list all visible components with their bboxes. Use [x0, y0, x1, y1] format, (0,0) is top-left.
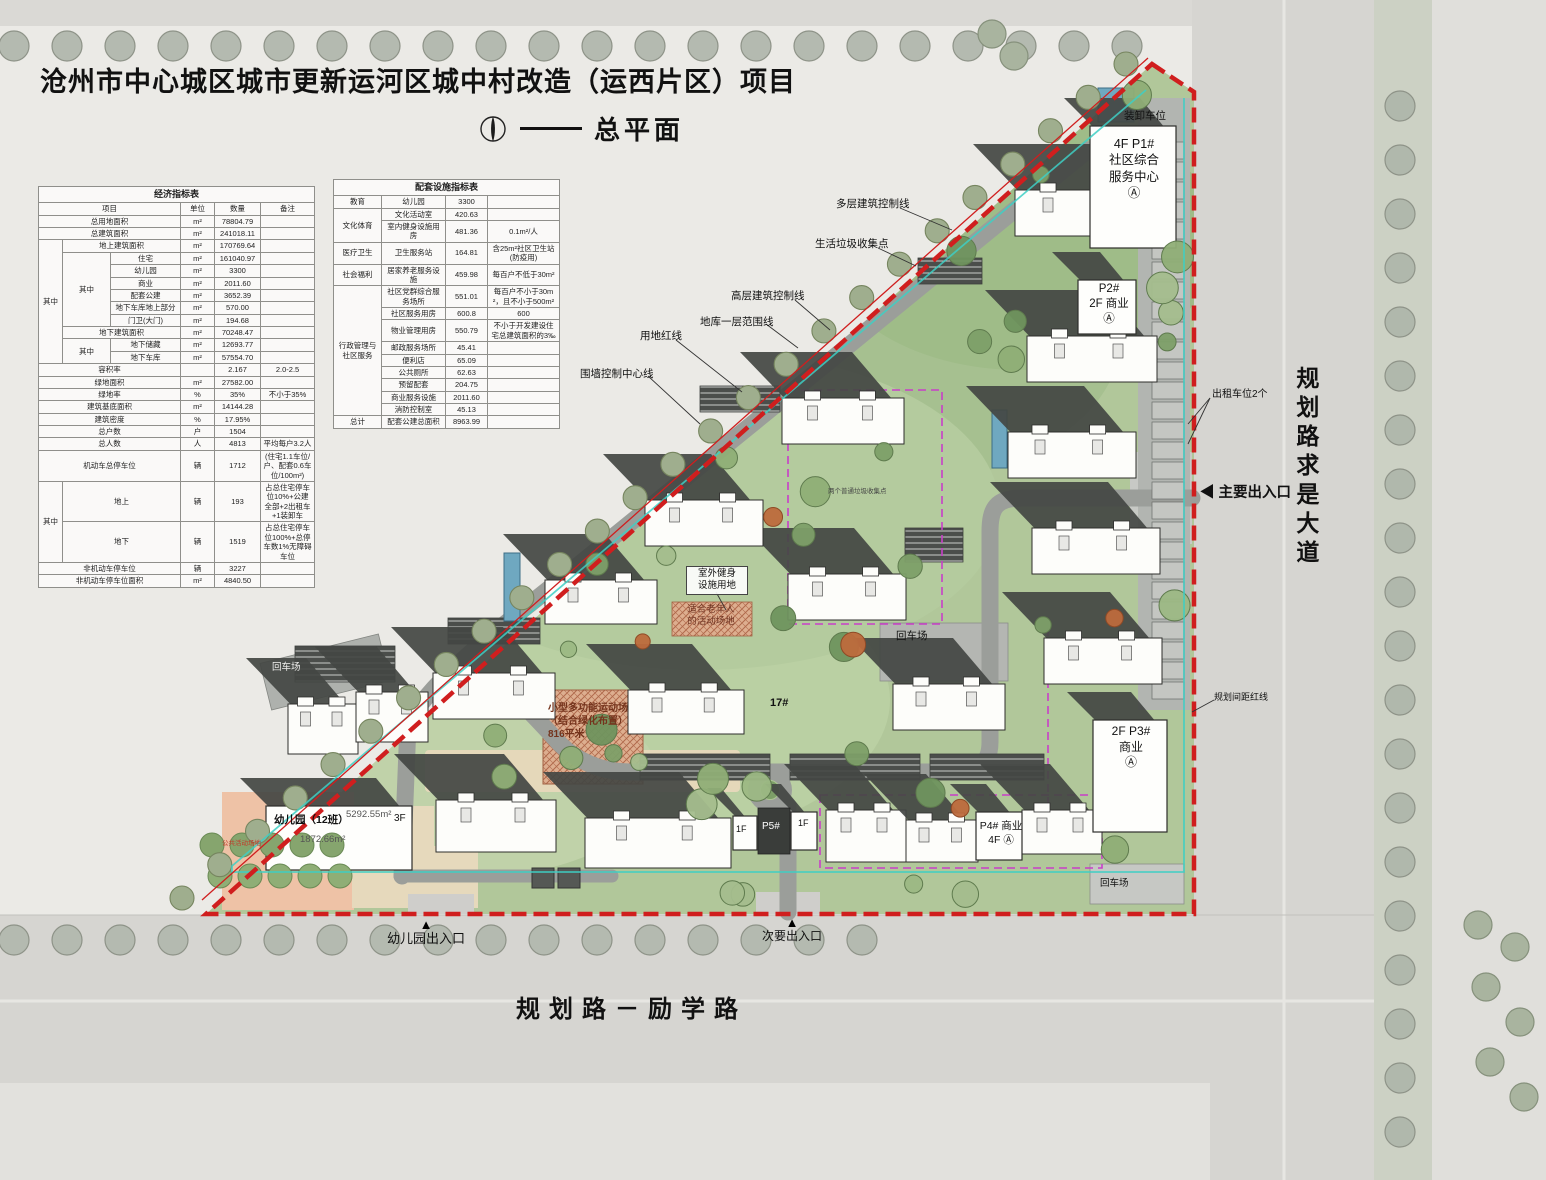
table-cell: 单位: [181, 203, 215, 215]
label-kindergarten-floors: 3F: [394, 812, 406, 825]
tree-icon: [742, 772, 771, 801]
street-tree-icon: [847, 31, 877, 61]
table-cell: 社区党群综合服务场所: [382, 286, 446, 308]
table-cell: [181, 364, 215, 376]
stair-core: [1056, 521, 1072, 530]
table-cell: [261, 302, 315, 314]
table-cell: [488, 416, 560, 428]
table-cell: m²: [181, 289, 215, 301]
street-tree-icon: [1385, 469, 1415, 499]
building-footprint: [436, 800, 556, 852]
street-tree-icon: [1385, 901, 1415, 931]
table-cell: [261, 252, 315, 264]
label-building-p2: P2# 2F 商业 Ⓐ: [1082, 282, 1136, 327]
table-cell: [488, 404, 560, 416]
table-cell: 门卫(大门): [111, 314, 181, 326]
street-tree-icon: [635, 31, 665, 61]
unit-core: [618, 588, 628, 602]
table-cell: 17.95%: [215, 413, 261, 425]
table-cell: [261, 314, 315, 326]
table-cell: 1504: [215, 426, 261, 438]
label-1f-a: 1F: [736, 824, 747, 836]
street-tree-icon: [529, 925, 559, 955]
boundary-tree-icon: [1001, 152, 1025, 176]
label-kindergarten-name: 幼儿园（12班）: [274, 814, 349, 828]
boundary-tree-icon: [397, 686, 421, 710]
table-cell: 194.68: [215, 314, 261, 326]
unit-core: [966, 692, 976, 706]
table-cell: m²: [181, 215, 215, 227]
tree-icon: [1159, 590, 1190, 621]
building-footprint: [788, 574, 906, 620]
table-cell: 164.81: [446, 242, 488, 264]
unit-core: [813, 582, 823, 596]
parking-stall: [1152, 442, 1184, 459]
table-cell: 公共厕所: [382, 366, 446, 378]
boundary-tree-icon: [623, 486, 647, 510]
table-cell: 总户数: [39, 426, 181, 438]
street-tree-icon: [317, 925, 347, 955]
tree-icon: [998, 346, 1024, 372]
label-1f-b: 1F: [798, 818, 809, 830]
table-cell: 地下车库地上部分: [111, 302, 181, 314]
unit-core: [617, 826, 627, 840]
table-cell: 经济指标表: [39, 187, 315, 203]
street-tree-icon: [105, 925, 135, 955]
stair-core: [614, 811, 630, 820]
table-cell: 绿地率: [39, 388, 181, 400]
label-sports-field: 小型多功能运动场 （结合绿化布置） 816平米: [548, 702, 628, 741]
unit-core: [1122, 646, 1132, 660]
street-tree-icon: [688, 925, 718, 955]
label-taxi-bays: 出租车位2个: [1212, 388, 1268, 401]
label-outdoor-fitness: 室外健身 设施用地: [686, 566, 748, 595]
table-cell: 每百户不小于30m²，且不小于500m²: [488, 286, 560, 308]
unit-core: [919, 828, 929, 842]
economic-indicator-table: 经济指标表项目单位数量备注总用地面积m²78804.79总建筑面积m²24101…: [38, 186, 315, 588]
table-cell: 商业服务设施: [382, 391, 446, 403]
table-cell: 地上: [63, 481, 181, 522]
parking-stall: [1152, 462, 1184, 479]
stair-core: [720, 493, 736, 502]
building-footprint: [628, 690, 744, 734]
facilities-table-body: 配套设施指标表教育幼儿园3300文化体育文化活动室420.63室内健身设施用房4…: [334, 180, 560, 429]
bush-icon: [298, 864, 322, 888]
table-cell: 4813: [215, 438, 261, 450]
table-cell: 总建筑面积: [39, 228, 181, 240]
unit-core: [1037, 818, 1047, 832]
table-cell: 481.36: [446, 221, 488, 243]
label-building-p3: 2F P3# 商业 Ⓐ: [1100, 724, 1162, 771]
boundary-tree-icon: [963, 185, 987, 209]
table-cell: [261, 240, 315, 252]
table-cell: 总计: [334, 416, 382, 428]
table-cell: 居家养老服务设施: [382, 264, 446, 286]
secondary-entrance-arrow-icon: ▲: [740, 916, 844, 929]
street-tree-icon: [1385, 253, 1415, 283]
table-cell: 备注: [261, 203, 315, 215]
stair-core: [1090, 425, 1106, 434]
table-cell: %: [181, 388, 215, 400]
unit-core: [1117, 536, 1127, 550]
unit-core: [369, 700, 379, 714]
parking-stall: [1152, 622, 1184, 639]
tree-icon: [845, 742, 869, 766]
tree-icon: [657, 546, 676, 565]
table-cell: 配套设施指标表: [334, 180, 560, 196]
label-kindergarten-entrance: ▲幼儿园出入口: [368, 918, 484, 948]
building-footprint: [288, 704, 358, 754]
table-cell: 项目: [39, 203, 181, 215]
table-cell: 辆: [181, 522, 215, 563]
table-cell: 数量: [215, 203, 261, 215]
tree-icon: [916, 778, 945, 807]
main-entrance-arrow-icon: ◀: [1200, 485, 1215, 501]
stair-core: [649, 683, 665, 692]
table-cell: 其中: [39, 240, 63, 364]
table-cell: 170769.64: [215, 240, 261, 252]
street-tree-icon: [1385, 1117, 1415, 1147]
unit-core: [841, 818, 851, 832]
unit-core: [652, 698, 662, 712]
stair-core: [810, 567, 826, 576]
tree-icon: [1147, 272, 1179, 304]
street-tree-icon: [158, 31, 188, 61]
street-tree-icon: [158, 925, 188, 955]
table-cell: 1712: [215, 450, 261, 481]
table-cell: 预留配套: [382, 379, 446, 391]
drawing-subtitle: 总平面: [478, 110, 684, 147]
unit-core: [951, 828, 961, 842]
label-road-south: 规划路－励学路: [516, 994, 747, 1025]
stair-core: [458, 793, 474, 802]
table-cell: 社会福利: [334, 264, 382, 286]
stair-core: [913, 677, 929, 686]
street-tree-icon: [1385, 361, 1415, 391]
parking-stall: [1152, 422, 1184, 439]
kindergarten-entrance-apron: [408, 894, 474, 914]
tree-icon: [560, 746, 583, 769]
table-cell: 文化活动室: [382, 208, 446, 220]
table-cell: [261, 376, 315, 388]
street-tree-icon: [0, 925, 29, 955]
bush-icon: [268, 864, 292, 888]
table-cell: 绿地面积: [39, 376, 181, 388]
table-cell: 551.01: [446, 286, 488, 308]
label-waste-collection-point: 生活垃圾收集点: [815, 238, 889, 252]
tree-icon: [1122, 80, 1151, 109]
tree-icon: [792, 523, 815, 546]
stair-core: [838, 803, 854, 812]
table-cell: 文化体育: [334, 208, 382, 242]
table-cell: [261, 265, 315, 277]
parking-stall: [1152, 382, 1184, 399]
table-cell: m²: [181, 351, 215, 363]
building-footprint: [645, 500, 763, 546]
table-cell: 27582.00: [215, 376, 261, 388]
tree-icon: [605, 745, 622, 762]
table-cell: [488, 366, 560, 378]
street-tree-icon: [1385, 1009, 1415, 1039]
tree-icon: [771, 606, 796, 631]
table-cell: m²: [181, 314, 215, 326]
table-cell: m²: [181, 228, 215, 240]
table-cell: 幼儿园: [111, 265, 181, 277]
table-cell: 2011.60: [215, 277, 261, 289]
street-tree-icon: [1385, 955, 1415, 985]
unit-core: [877, 818, 887, 832]
table-cell: 地上建筑面积: [63, 240, 181, 252]
table-cell: 辆: [181, 562, 215, 574]
unit-core: [461, 808, 471, 822]
label-building-p5: P5#: [762, 820, 780, 833]
building-footprint: [893, 684, 1005, 730]
street-tree-icon: [1506, 1008, 1534, 1036]
stair-core: [805, 391, 821, 400]
label-turnaround-left: 回车场: [272, 662, 301, 674]
label-kindergarten-area1: 5292.55m²: [346, 809, 391, 821]
building-footprint: [906, 820, 978, 862]
stair-core: [863, 567, 879, 576]
building-footprint: [1008, 432, 1136, 478]
table-cell: 3652.39: [215, 289, 261, 301]
table-cell: 机动车总停车位: [39, 450, 181, 481]
table-cell: 商业: [111, 277, 181, 289]
table-cell: 占总住宅停车位10%+公建全部+2出租车+1装卸车: [261, 481, 315, 522]
stair-core: [329, 697, 345, 706]
table-cell: [488, 196, 560, 208]
unit-core: [1069, 646, 1079, 660]
stair-core: [1070, 803, 1086, 812]
kg-entrance-arrow-icon: ▲: [368, 918, 484, 931]
tree-icon: [875, 443, 893, 461]
boundary-tree-icon: [548, 552, 572, 576]
boundary-tree-icon: [359, 719, 383, 743]
table-cell: 45.13: [446, 404, 488, 416]
table-cell: 含25m²社区卫生站(防疫用): [488, 242, 560, 264]
table-cell: 配套公建: [111, 289, 181, 301]
site-plan-drawing: [0, 0, 1546, 1180]
label-basement-extent-line: 地库一层范围线: [700, 316, 774, 330]
street-tree-icon: [1385, 1063, 1415, 1093]
street-tree-icon: [847, 925, 877, 955]
unit-core: [704, 698, 714, 712]
table-cell: 193: [215, 481, 261, 522]
table-cell: 其中: [63, 252, 111, 326]
street-tree-icon: [1476, 1048, 1504, 1076]
table-cell: [261, 215, 315, 227]
stair-core: [1052, 329, 1068, 338]
table-cell: [261, 562, 315, 574]
stair-core: [1114, 521, 1130, 530]
table-cell: 420.63: [446, 208, 488, 220]
table-cell: [261, 228, 315, 240]
tree-icon: [1035, 617, 1051, 633]
table-cell: m²: [181, 401, 215, 413]
table-cell: m²: [181, 302, 215, 314]
street-tree-icon: [264, 31, 294, 61]
table-cell: m²: [181, 376, 215, 388]
table-cell: 459.98: [446, 264, 488, 286]
street-tree-icon: [582, 925, 612, 955]
table-cell: 其中: [63, 339, 111, 364]
unit-core: [682, 826, 692, 840]
table-cell: 非机动车停车位: [39, 562, 181, 574]
tree-icon: [1158, 333, 1176, 351]
boundary-tree-icon: [925, 219, 949, 243]
table-cell: 建筑基底面积: [39, 401, 181, 413]
table-cell: [488, 379, 560, 391]
tree-icon: [715, 447, 737, 469]
table-cell: 不小于35%: [261, 388, 315, 400]
table-cell: [488, 342, 560, 354]
building-footprint: [782, 398, 904, 444]
pergola-structure: [918, 258, 982, 284]
boundary-tree-icon: [208, 853, 232, 877]
table-cell: 行政管理与社区服务: [334, 286, 382, 416]
table-cell: 45.41: [446, 342, 488, 354]
street-tree-icon: [1510, 1083, 1538, 1111]
label-wall-control-centerline: 围墙控制中心线: [580, 368, 654, 382]
table-cell: 70248.47: [215, 327, 261, 339]
facilities-indicator-table: 配套设施指标表教育幼儿园3300文化体育文化活动室420.63室内健身设施用房4…: [333, 179, 560, 429]
table-cell: 室内健身设施用房: [382, 221, 446, 243]
table-cell: 辆: [181, 481, 215, 522]
table-cell: 241018.11: [215, 228, 261, 240]
table-cell: 570.00: [215, 302, 261, 314]
table-cell: 65.09: [446, 354, 488, 366]
tree-icon: [560, 641, 576, 657]
east-sidewalk: [1432, 0, 1546, 1180]
table-cell: [261, 277, 315, 289]
table-cell: 教育: [334, 196, 382, 208]
table-cell: [261, 339, 315, 351]
bush-icon: [328, 864, 352, 888]
label-highrise-control-line: 高层建筑控制线: [731, 290, 805, 304]
tree-icon: [1106, 609, 1123, 626]
unit-core: [513, 681, 523, 695]
table-cell: m²: [181, 327, 215, 339]
unit-core: [1035, 440, 1045, 454]
street-tree-icon: [1385, 631, 1415, 661]
street-tree-icon: [635, 925, 665, 955]
table-cell: 地下储藏: [111, 339, 181, 351]
table-cell: 600.8: [446, 308, 488, 320]
street-tree-icon: [1472, 973, 1500, 1001]
table-cell: 卫生服务站: [382, 242, 446, 264]
tree-icon: [764, 508, 783, 527]
parking-stall: [1152, 682, 1184, 699]
table-cell: 3227: [215, 562, 261, 574]
table-cell: 物业管理用房: [382, 320, 446, 342]
tree-icon: [492, 764, 517, 789]
unit-core: [1043, 198, 1053, 212]
stair-core: [963, 677, 979, 686]
tree-icon: [1101, 836, 1128, 863]
label-road-east: 规划路求是大道: [1290, 366, 1320, 569]
tree-icon: [905, 875, 923, 893]
street-tree-icon: [1000, 42, 1028, 70]
table-cell: 地下建筑面积: [63, 327, 181, 339]
tree-icon: [968, 330, 992, 354]
unit-core: [723, 508, 733, 522]
parking-stall: [1152, 482, 1184, 499]
street-tree-icon: [1385, 307, 1415, 337]
tree-icon: [841, 632, 866, 657]
table-cell: [488, 208, 560, 220]
tree-icon: [1004, 310, 1026, 332]
tree-icon: [898, 554, 922, 578]
stair-core: [874, 803, 890, 812]
table-cell: 4840.50: [215, 575, 261, 587]
table-cell: 平均每户3.2人: [261, 438, 315, 450]
stair-core: [859, 391, 875, 400]
street-tree-icon: [1385, 415, 1415, 445]
boundary-tree-icon: [510, 586, 534, 610]
boundary-tree-icon: [1038, 119, 1062, 143]
building-footprint: [1032, 528, 1160, 574]
economic-table-body: 经济指标表项目单位数量备注总用地面积m²78804.79总建筑面积m²24101…: [39, 187, 315, 588]
table-cell: 地下车库: [111, 351, 181, 363]
street-tree-icon: [105, 31, 135, 61]
boundary-tree-icon: [170, 886, 194, 910]
label-kindergarten-area2: 1872.66m²: [300, 834, 345, 846]
tree-icon: [1162, 241, 1194, 273]
table-cell: 8963.99: [446, 416, 488, 428]
street-tree-icon: [1385, 523, 1415, 553]
boundary-tree-icon: [472, 619, 496, 643]
table-cell: 161040.97: [215, 252, 261, 264]
table-cell: [261, 401, 315, 413]
street-tree-icon: [978, 20, 1006, 48]
unit-core: [332, 712, 342, 726]
table-cell: 14144.28: [215, 401, 261, 413]
subtitle-text: 总平面: [594, 110, 684, 147]
street-tree-icon: [52, 31, 82, 61]
tree-icon: [720, 881, 744, 905]
table-cell: 57554.70: [215, 351, 261, 363]
unit-core: [808, 406, 818, 420]
table-cell: m²: [181, 265, 215, 277]
table-cell: 医疗卫生: [334, 242, 382, 264]
table-cell: 配套公建总面积: [382, 416, 446, 428]
table-cell: 204.75: [446, 379, 488, 391]
label-spacing-red-line: 规划间距红线: [1214, 692, 1268, 704]
street-tree-icon: [1059, 31, 1089, 61]
table-cell: 占总住宅停车位100%+总停车数1%无障碍车位: [261, 522, 315, 563]
street-tree-icon: [211, 925, 241, 955]
street-tree-icon: [688, 31, 718, 61]
table-cell: m²: [181, 575, 215, 587]
street-tree-icon: [1385, 577, 1415, 607]
label-public-activity-area: 公共活动场地: [222, 840, 261, 848]
utility-box: [532, 868, 554, 888]
street-tree-icon: [264, 925, 294, 955]
tree-icon: [484, 724, 507, 747]
building-footprint: [585, 818, 731, 868]
street-tree-icon: [1385, 145, 1415, 175]
unit-core: [862, 406, 872, 420]
unit-core: [916, 692, 926, 706]
building-footprint: [1022, 810, 1102, 854]
tree-icon: [635, 634, 650, 649]
table-cell: [261, 426, 315, 438]
parking-stall: [1152, 402, 1184, 419]
street-tree-icon: [1385, 739, 1415, 769]
tree-icon: [952, 881, 978, 907]
table-cell: [488, 354, 560, 366]
street-tree-icon: [794, 31, 824, 61]
